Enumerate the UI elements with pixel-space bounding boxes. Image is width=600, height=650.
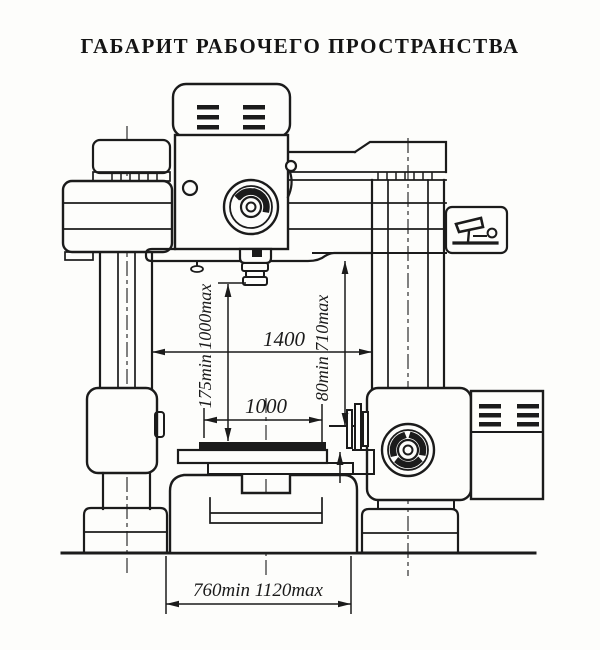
dim-label-spindle-to-table: 175min 1000max: [195, 284, 215, 409]
dim-label-1000: 1000: [245, 394, 288, 418]
arm-left-end: [63, 181, 172, 252]
head-body: [175, 135, 288, 249]
left-foot: [84, 508, 167, 553]
machine-drawing: 1400 1000 175min 1000max 80min 710max 76…: [0, 0, 600, 650]
dim-base: 760min 1120max: [166, 556, 351, 614]
column-cap: [93, 140, 170, 173]
depth-stop-pin: [191, 261, 203, 272]
table-saddle: [208, 463, 353, 474]
dim-1000: 1000: [204, 394, 322, 442]
radial-arm: [288, 142, 449, 253]
table-surface: [199, 442, 326, 451]
head-motor-housing: [173, 84, 290, 137]
elevating-motor: [362, 388, 543, 553]
dim-1400: 1400: [152, 327, 372, 355]
right-foot: [362, 509, 458, 553]
table-body: [178, 450, 327, 463]
spindle-chuck: [240, 249, 271, 285]
machine-base: [170, 475, 357, 553]
column-sleeve: [87, 388, 157, 473]
dim-spindle-to-table: 175min 1000max: [195, 283, 246, 441]
dim-label-arm-to-table: 80min 710max: [312, 295, 332, 402]
dim-label-1400: 1400: [263, 327, 306, 351]
control-box: [446, 207, 507, 253]
drill-head: [146, 84, 372, 272]
dim-label-base: 760min 1120max: [193, 580, 324, 601]
left-column: [63, 140, 172, 553]
base-bed: [170, 475, 357, 553]
